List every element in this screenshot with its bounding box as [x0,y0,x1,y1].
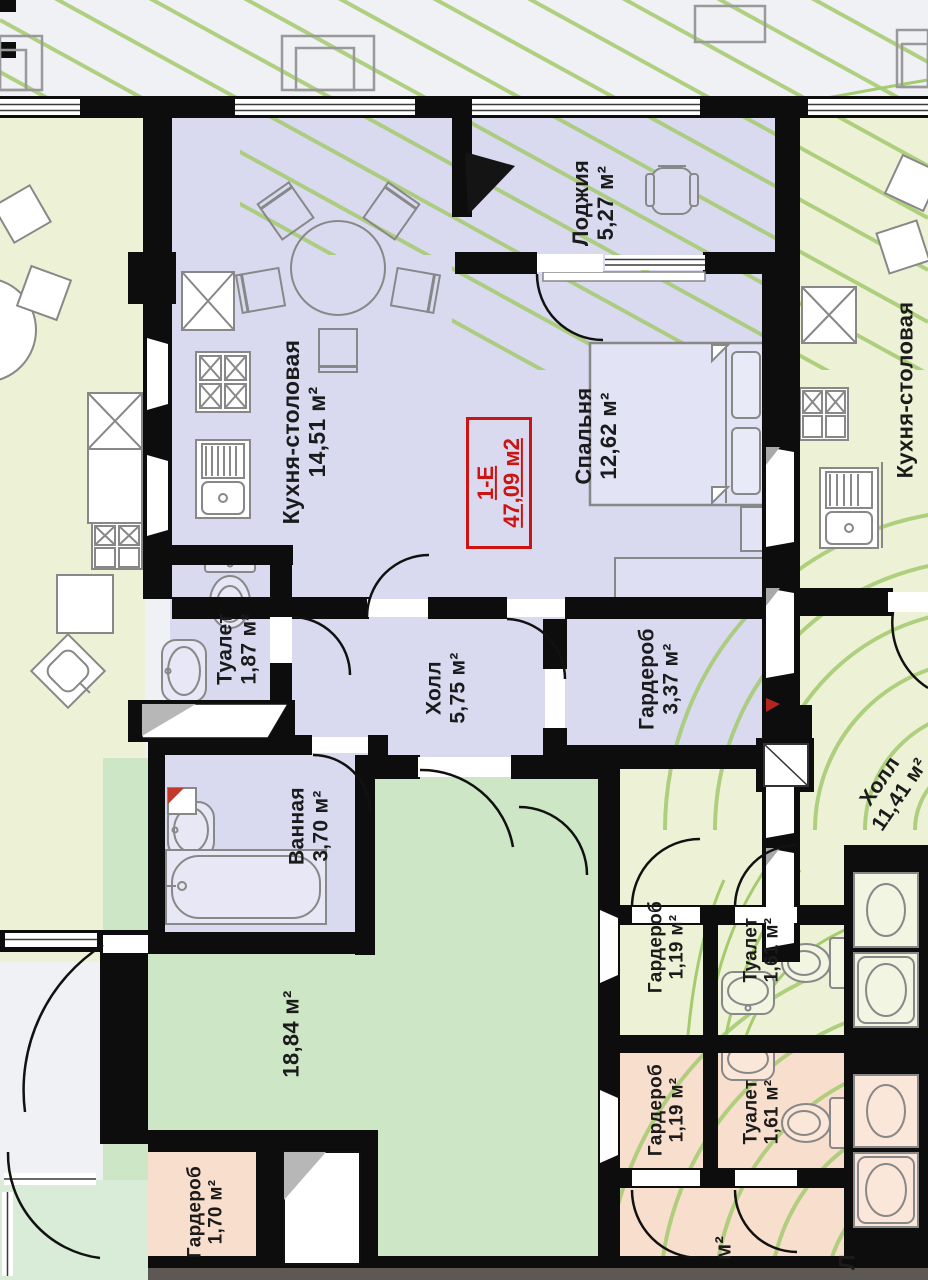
room-label-wardrobe-upper-right-area: 1,19 м² [667,915,688,980]
room-label-edge-partial-name: Л [836,1254,861,1270]
kitchen-sink-icon [196,440,250,518]
room-label-toilet-lower-right-area: 1,61 м² [762,1080,783,1145]
room-label-toilet-upper-right: Туалет 1,61 м² [741,917,784,982]
room-label-kitchen: Кухня-столовая 14,51 м² [278,340,330,525]
room-label-bedroom: Спальня 12,62 м² [572,387,622,484]
floor-plan-drawing [0,0,928,1280]
room-label-kitchen-right-name: Кухня-столовая [894,302,919,479]
room-label-wardrobe-upper-right-name: Гардероб [646,901,667,993]
room-label-toilet: Туалет 1,87 м² [213,613,260,685]
edge-partial-area-text: м² [712,1236,737,1260]
room-label-bathroom-area: 3,70 м² [309,790,333,861]
room-label-wardrobe: Гардероб 3,37 м² [635,628,682,730]
room-label-loggia-area: 5,27 м² [594,166,619,241]
room-label-kitchen-name: Кухня-столовая [278,340,304,525]
room-label-common-area-value: 18,84 м² [280,990,305,1077]
room-label-common-area: 18,84 м² [280,990,305,1077]
room-label-wardrobe-name: Гардероб [635,628,659,730]
floor-plan: Кухня-столовая 14,51 м² Лоджия 5,27 м² С… [0,0,928,1280]
room-label-wardrobe-lower-right: Гардероб 1,19 м² [646,1064,689,1156]
unit-code: 1-Е [473,466,499,500]
plan-bottom-edge [148,1268,928,1280]
room-label-edge-partial-area: м² [712,1236,737,1260]
room-label-bathroom: Ванная 3,70 м² [285,787,332,865]
room-label-wardrobe-bottom-left-area: 1,70 м² [206,1180,227,1245]
room-label-toilet-lower-right: Туалет 1,61 м² [741,1079,784,1144]
room-label-hall-area: 5,75 м² [446,652,470,723]
room-label-bedroom-area: 12,62 м² [597,392,622,479]
room-label-toilet-name: Туалет [213,613,237,685]
stove-icon [196,352,250,412]
edge-partial-name-text: Л [836,1254,861,1270]
loggia-armchair-icon [646,166,698,214]
room-label-toilet-upper-right-name: Туалет [741,917,762,982]
unit-label-text: 1-Е 47,09 м2 [473,438,525,528]
room-label-kitchen-area: 14,51 м² [304,386,330,477]
room-label-hall-name: Холл [422,661,446,715]
unit-label: 1-Е 47,09 м2 [466,417,532,549]
balcony-outlines [0,6,928,90]
room-label-toilet-upper-right-area: 1,61 м² [762,918,783,983]
room-label-bedroom-name: Спальня [572,387,597,484]
room-label-wardrobe-lower-right-name: Гардероб [646,1064,667,1156]
room-label-loggia: Лоджия 5,27 м² [569,160,619,246]
sink-icon [162,640,206,702]
room-label-hall: Холл 5,75 м² [422,652,469,723]
room-label-toilet-area: 1,87 м² [237,613,261,684]
room-label-toilet-lower-right-name: Туалет [741,1079,762,1144]
unit-area: 47,09 м2 [499,438,525,528]
room-label-kitchen-right: Кухня-столовая [894,302,919,479]
room-label-bathroom-name: Ванная [285,787,309,865]
room-label-wardrobe-lower-right-area: 1,19 м² [667,1078,688,1143]
room-label-loggia-name: Лоджия [569,160,594,246]
room-label-wardrobe-bottom-left: Гардероб 1,70 м² [185,1166,228,1258]
room-label-wardrobe-bottom-left-name: Гардероб [185,1166,206,1258]
room-label-wardrobe-upper-right: Гардероб 1,19 м² [646,901,689,993]
room-label-wardrobe-area: 3,37 м² [659,643,683,714]
